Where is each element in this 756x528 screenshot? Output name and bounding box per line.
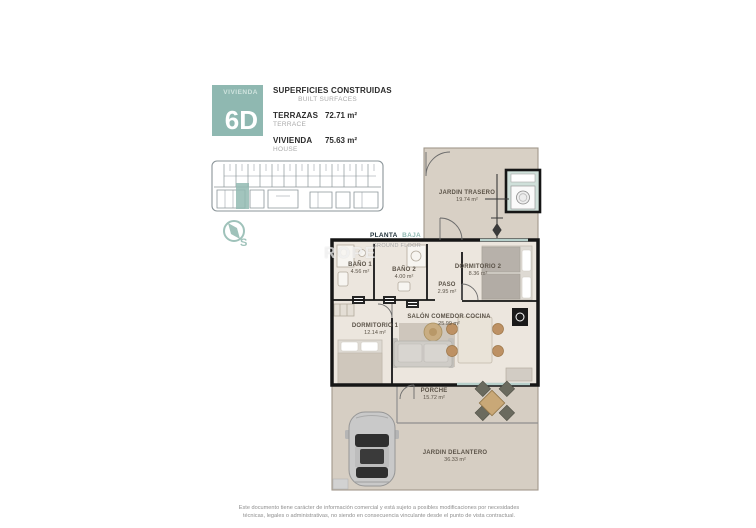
unit-number: 6D <box>225 109 258 132</box>
floorplan-sheet: VIVIENDA 6D SUPERFICIES CONSTRUIDAS BUIL… <box>0 0 756 528</box>
plan-drawing <box>0 0 756 528</box>
site-plan <box>212 161 383 211</box>
washing-machine-icon <box>511 186 535 209</box>
house-label-en: HOUSE <box>273 146 312 153</box>
disclaimer-text: Este documento tiene carácter de informa… <box>237 504 521 520</box>
floor-level-label: PLANTA BAJA GROUND FLOOR <box>345 224 421 249</box>
surfaces-title: SUPERFICIES CONSTRUIDAS <box>273 86 357 95</box>
surfaces-title-en: BUILT SURFACES <box>273 96 357 103</box>
highlighted-unit <box>236 183 249 209</box>
sofa-icon <box>392 323 455 368</box>
terrace-label-en: TERRACE <box>273 121 318 128</box>
surfaces-header: SUPERFICIES CONSTRUIDAS BUILT SURFACES T… <box>273 86 357 153</box>
unit-badge-label: VIVIENDA <box>223 89 258 96</box>
bed-icon-dorm2 <box>482 246 532 300</box>
bed-icon-dorm1 <box>338 340 382 385</box>
ground-floor-text: GROUND FLOOR <box>345 243 421 249</box>
terrazas-label: TERRAZAS <box>273 111 318 120</box>
baja-text: BAJA <box>402 232 421 239</box>
vivienda-label: VIVIENDA <box>273 136 312 145</box>
steps <box>333 479 348 489</box>
compass-south-label: S <box>240 237 247 249</box>
surface-row-terrazas: TERRAZAS TERRACE 72.71 m² <box>273 111 357 128</box>
wardrobe <box>334 304 354 316</box>
vivienda-value: 75.63 m² <box>325 136 357 153</box>
surface-row-vivienda: VIVIENDA HOUSE 75.63 m² <box>273 136 357 153</box>
floor-plan <box>332 148 540 490</box>
car-icon <box>345 412 399 486</box>
unit-badge: VIVIENDA 6D <box>212 85 263 136</box>
terrazas-value: 72.71 m² <box>325 111 357 128</box>
planta-text: PLANTA <box>370 232 398 239</box>
utility-closet <box>506 170 540 212</box>
